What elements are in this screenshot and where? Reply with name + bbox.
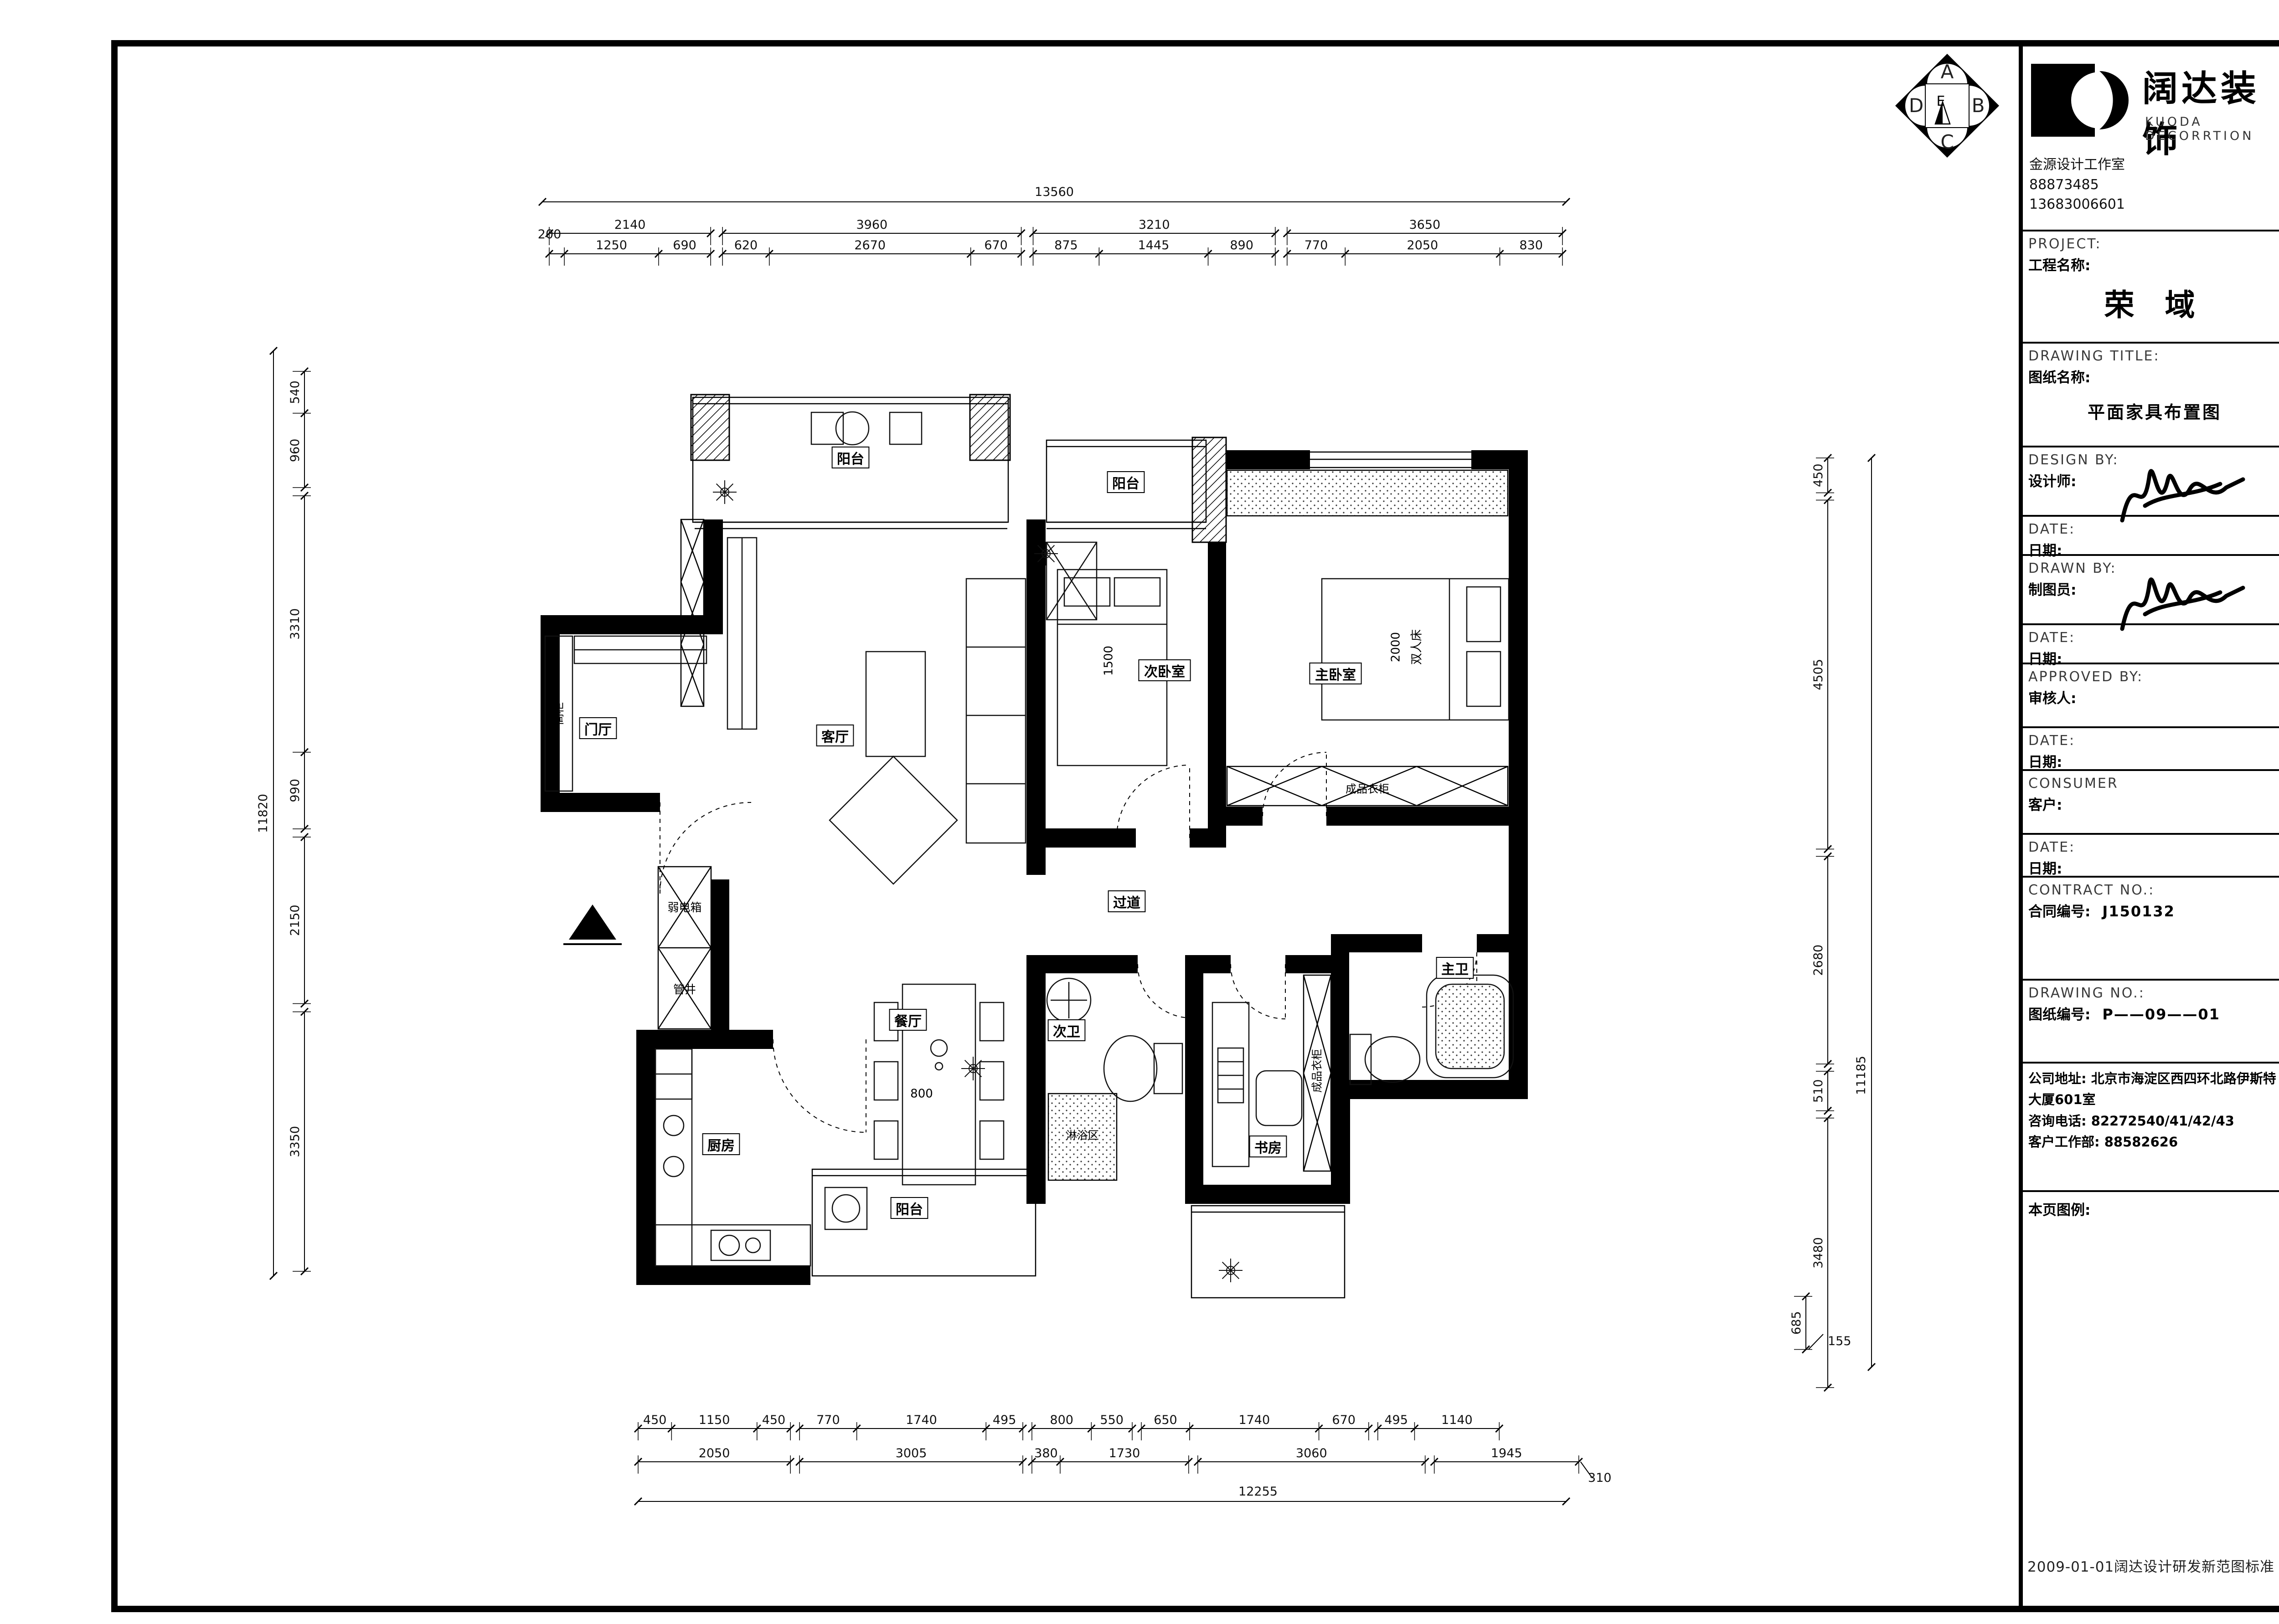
svg-text:主卫: 主卫 <box>1441 962 1469 978</box>
plant-icon <box>961 1057 985 1080</box>
dim-value: 550 <box>1100 1413 1124 1427</box>
dim-value: 450 <box>1811 463 1825 487</box>
dim-value: 960 <box>288 439 302 463</box>
dim-value: 495 <box>1384 1413 1408 1427</box>
tb-drawing-no-cn: 图纸编号:P——09——01 <box>2028 1003 2279 1023</box>
plant-icons <box>713 480 1243 1282</box>
tb-date-4-en: DATE: <box>2028 839 2279 855</box>
svg-text:阳台: 阳台 <box>896 1202 923 1218</box>
room-label-bed-master: 双人床 <box>1410 629 1423 665</box>
tb-consumer-en: CONSUMER <box>2028 776 2279 791</box>
svg-text:客厅: 客厅 <box>821 730 849 745</box>
dim-value: 770 <box>1304 238 1328 252</box>
svg-text:阳台: 阳台 <box>837 452 864 468</box>
dim-value: 1740 <box>906 1413 937 1427</box>
tb-date-2-en: DATE: <box>2028 630 2279 646</box>
kuoda-logo-icon <box>2031 64 2136 137</box>
svg-text:阳台: 阳台 <box>1112 476 1139 492</box>
svg-text:过道: 过道 <box>1113 895 1140 911</box>
svg-text:成品衣柜: 成品衣柜 <box>1346 783 1389 796</box>
tb-date-3-en: DATE: <box>2028 733 2279 749</box>
room-label-bed2-size: 1500 <box>1102 646 1115 676</box>
svg-text:次卧室: 次卧室 <box>1144 664 1185 680</box>
dim-value: 1250 <box>596 238 627 252</box>
dim-value: 685 <box>1789 1311 1804 1335</box>
dim-value: 2680 <box>1811 945 1825 976</box>
dim-value: 770 <box>816 1413 840 1427</box>
room-label-gaogui: 高柜 <box>552 702 565 725</box>
dim-value: 3650 <box>1409 218 1440 232</box>
tb-drawn-by-cn: 制图员: <box>2028 578 2279 599</box>
room-label-guanjing: 管井 <box>673 983 696 996</box>
dim-value: 2670 <box>854 238 886 252</box>
svg-text:2000: 2000 <box>1389 632 1402 662</box>
svg-text:主卧室: 主卧室 <box>1315 668 1356 684</box>
room-label-yangtai-2: 阳台 <box>1108 472 1145 493</box>
tb-address-line-3: 客户工作部: 88582626 <box>2028 1131 2279 1152</box>
svg-text:淋浴区: 淋浴区 <box>1066 1129 1099 1142</box>
dim-value: 155 <box>1828 1334 1851 1348</box>
room-label-menting: 门厅 <box>580 718 617 739</box>
walls <box>541 395 1528 1285</box>
dim-value: 380 <box>1034 1446 1058 1460</box>
room-label-yangtai-1: 阳台 <box>832 447 869 468</box>
dim-value: 670 <box>1332 1413 1356 1427</box>
tb-drawing-title-en: DRAWING TITLE: <box>2028 348 2279 364</box>
svg-text:门厅: 门厅 <box>584 722 612 738</box>
dim-value: 1140 <box>1441 1413 1473 1427</box>
tb-contract-no-value: J150132 <box>2102 903 2175 920</box>
floor-plan: ABCDE 1356021403960321036502001250690620… <box>0 0 2279 1624</box>
north-arrow-icon <box>563 905 622 944</box>
svg-text:成品衣柜: 成品衣柜 <box>1311 1049 1324 1093</box>
svg-text:餐厅: 餐厅 <box>894 1014 922 1030</box>
svg-text:厨房: 厨房 <box>707 1138 735 1154</box>
dim-value: 3480 <box>1811 1237 1825 1269</box>
dim-value: 200 <box>538 227 562 242</box>
tb-project-value: 荣 域 <box>2028 281 2279 324</box>
tb-date-3-cn: 日期: <box>2028 750 2279 771</box>
studio-phone-2: 13683006601 <box>2029 195 2125 215</box>
room-label-zhuwoshi: 主卧室 <box>1310 663 1361 684</box>
windows-and-rails <box>542 397 1508 1298</box>
tb-approved-by-cn: 审核人: <box>2028 687 2279 707</box>
drawing-sheet: ABCDE 1356021403960321036502001250690620… <box>0 0 2279 1624</box>
tb-drawing-no-value: P——09——01 <box>2102 1006 2220 1023</box>
room-label-ciwoshi: 次卧室 <box>1139 660 1190 681</box>
tb-row-legend: 本页图例: <box>2023 1190 2279 1581</box>
dim-value: 2050 <box>1407 238 1439 252</box>
dim-value: 4505 <box>1811 659 1825 690</box>
title-block: 阔达装饰 KUODA DECORRTION 金源设计工作室 88873485 1… <box>2019 46 2279 1606</box>
tb-row-date-2: DATE:日期: <box>2023 623 2279 663</box>
studio-info: 金源设计工作室 88873485 13683006601 <box>2029 155 2125 215</box>
tb-address-line-2: 咨询电话: 82272540/41/42/43 <box>2028 1110 2279 1131</box>
svg-text:高柜: 高柜 <box>552 702 565 725</box>
tb-row-approved-by: APPROVED BY:审核人: <box>2023 663 2279 726</box>
tb-address-line-0: 公司地址: 北京市海淀区西四环北路伊斯特 <box>2028 1068 2279 1089</box>
svg-text:1500: 1500 <box>1102 646 1115 676</box>
room-label-guodao: 过道 <box>1109 891 1145 912</box>
svg-text:管井: 管井 <box>673 983 696 996</box>
company-name: 阔达装饰 <box>2142 60 2279 162</box>
tb-row-design-by: DESIGN BY:设计师: <box>2023 446 2279 515</box>
room-label-ruodianxiang: 弱电箱 <box>667 901 701 914</box>
room-label-table-size: 800 <box>910 1087 933 1100</box>
dim-value: 2150 <box>288 905 302 936</box>
room-label-linyuqu: 淋浴区 <box>1066 1129 1099 1142</box>
logo-section: 阔达装饰 KUODA DECORRTION 金源设计工作室 88873485 1… <box>2023 46 2279 230</box>
dim-value: 800 <box>1050 1413 1073 1427</box>
tb-drawing-title-cn: 图纸名称: <box>2028 366 2279 386</box>
room-label-bed-master-size: 2000 <box>1389 632 1402 662</box>
tb-project-cn: 工程名称: <box>2028 254 2279 274</box>
dim-value: 650 <box>1154 1413 1177 1427</box>
emblem-letter-D: D <box>1909 94 1923 117</box>
tb-row-contract-no: CONTRACT NO.:合同编号:J150132 <box>2023 876 2279 979</box>
svg-text:800: 800 <box>910 1087 933 1100</box>
tb-legend-cn: 本页图例: <box>2028 1198 2279 1219</box>
tb-row-address: 公司地址: 北京市海淀区西四环北路伊斯特大厦601室咨询电话: 82272540… <box>2023 1062 2279 1190</box>
dim-value: 540 <box>288 380 302 404</box>
room-label-yangtai-3: 阳台 <box>891 1197 928 1218</box>
compass-emblem: ABCDE <box>1895 54 1999 158</box>
room-label-zhuwei: 主卫 <box>1437 957 1474 978</box>
tb-date-4-cn: 日期: <box>2028 857 2279 878</box>
tb-row-drawn-by: DRAWN BY:制图员: <box>2023 554 2279 623</box>
tb-date-1-en: DATE: <box>2028 521 2279 537</box>
svg-text:弱电箱: 弱电箱 <box>667 901 701 914</box>
tb-row-date-1: DATE:日期: <box>2023 515 2279 554</box>
room-label-yigui-1: 成品衣柜 <box>1346 783 1389 796</box>
company-name-en: KUODA DECORRTION <box>2145 115 2279 143</box>
plant-icon <box>713 480 737 504</box>
dim-value: 3310 <box>288 608 302 640</box>
dim-value: 3960 <box>856 218 888 232</box>
dim-value: 495 <box>993 1413 1016 1427</box>
tb-consumer-cn: 客户: <box>2028 793 2279 814</box>
dim-value: 510 <box>1811 1079 1825 1103</box>
room-label-shufang: 书房 <box>1250 1136 1287 1157</box>
tb-drawn-by-en: DRAWN BY: <box>2028 560 2279 576</box>
dim-value: 450 <box>643 1413 667 1427</box>
dim-value: 830 <box>1519 238 1543 252</box>
dim-value: 3005 <box>896 1446 927 1460</box>
dim-value: 1150 <box>699 1413 730 1427</box>
standard-note: 2009-01-01阔达设计研发新范图标准 <box>2027 1555 2274 1576</box>
dim-value: 2140 <box>614 218 646 232</box>
dim-value: 3350 <box>288 1126 302 1157</box>
svg-text:书房: 书房 <box>1254 1141 1282 1156</box>
tb-contract-no-en: CONTRACT NO.: <box>2028 882 2279 898</box>
tb-row-project: PROJECT:工程名称:荣 域 <box>2023 230 2279 342</box>
dim-value: 1740 <box>1238 1413 1270 1427</box>
svg-text:双人床: 双人床 <box>1410 629 1423 665</box>
tb-drawing-title-value: 平面家具布置图 <box>2028 398 2279 423</box>
emblem-letter-B: B <box>1972 94 1985 117</box>
dim-value: 1445 <box>1138 238 1170 252</box>
room-label-canting: 餐厅 <box>890 1009 927 1030</box>
room-label-keting: 客厅 <box>817 725 854 746</box>
dim-value: 620 <box>734 238 758 252</box>
svg-text:次卫: 次卫 <box>1053 1024 1080 1040</box>
dim-value: 670 <box>984 238 1008 252</box>
dim-value: 3210 <box>1139 218 1170 232</box>
tb-design-by-cn: 设计师: <box>2028 470 2279 490</box>
dim-value: 990 <box>288 779 302 802</box>
tb-row-consumer: CONSUMER客户: <box>2023 769 2279 833</box>
dim-value: 875 <box>1054 238 1078 252</box>
tb-project-en: PROJECT: <box>2028 236 2279 252</box>
dim-value: 1945 <box>1491 1446 1522 1460</box>
emblem-letter-C: C <box>1940 131 1954 153</box>
tb-row-drawing-no: DRAWING NO.:图纸编号:P——09——01 <box>2023 979 2279 1062</box>
emblem-letter-A: A <box>1941 61 1954 83</box>
studio-name: 金源设计工作室 <box>2029 155 2125 175</box>
dim-value: 2050 <box>699 1446 730 1460</box>
plant-icon <box>1034 542 1058 565</box>
dim-value: 3060 <box>1296 1446 1327 1460</box>
plant-icon <box>1219 1259 1243 1282</box>
dim-value: 11185 <box>1854 1056 1868 1095</box>
dim-value: 450 <box>762 1413 786 1427</box>
studio-phone-1: 88873485 <box>2029 175 2125 195</box>
tb-approved-by-en: APPROVED BY: <box>2028 669 2279 685</box>
tb-row-date-3: DATE:日期: <box>2023 726 2279 769</box>
room-label-ciwei: 次卫 <box>1048 1020 1085 1041</box>
room-label-yigui-2: 成品衣柜 <box>1311 1049 1324 1093</box>
tb-address-line-1: 大厦601室 <box>2028 1089 2279 1110</box>
dim-value: 13560 <box>1035 185 1074 199</box>
tb-drawing-no-en: DRAWING NO.: <box>2028 985 2279 1001</box>
tb-row-date-4: DATE:日期: <box>2023 833 2279 876</box>
dim-value: 12255 <box>1238 1485 1278 1499</box>
tb-contract-no-cn: 合同编号:J150132 <box>2028 900 2279 920</box>
dim-value: 1730 <box>1109 1446 1140 1460</box>
dim-value: 310 <box>1588 1471 1612 1485</box>
dim-value: 890 <box>1230 238 1253 252</box>
tb-row-drawing-title: DRAWING TITLE:图纸名称:平面家具布置图 <box>2023 342 2279 446</box>
tb-design-by-en: DESIGN BY: <box>2028 452 2279 468</box>
dim-value: 11820 <box>256 794 270 833</box>
room-label-chufang: 厨房 <box>703 1134 740 1155</box>
dim-value: 690 <box>673 238 696 252</box>
